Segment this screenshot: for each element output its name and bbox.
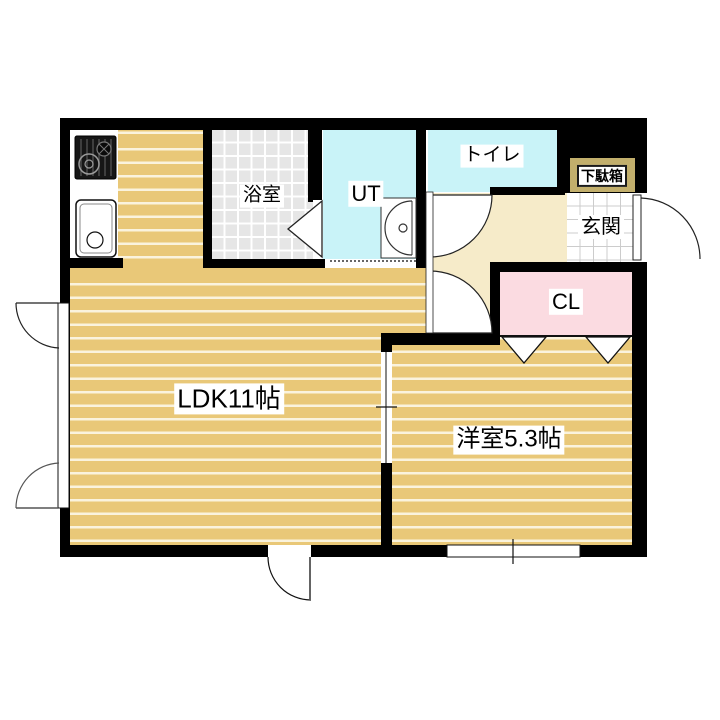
ldk-bottom-door-swing-icon — [268, 545, 311, 600]
bathroom-folding-door-icon — [288, 200, 323, 259]
fixtures-overlay — [0, 0, 720, 720]
closet-label: CL — [549, 289, 583, 315]
ldk-left-window-icon — [16, 303, 69, 508]
utility-label: UT — [348, 181, 383, 207]
ldk-label: LDK11帖 — [174, 383, 284, 414]
toilet-label: トイレ — [460, 145, 523, 168]
hall-door-leaf — [426, 192, 433, 333]
washbasin-icon — [381, 198, 416, 258]
toilet-door-swing-icon — [430, 195, 492, 257]
bathroom-label: 浴室 — [240, 185, 284, 208]
floor-plan: 浴室 UT トイレ 玄関 下駄箱 CL LDK11帖 洋室5.3帖 — [0, 0, 720, 720]
stove-icon — [75, 136, 116, 179]
sliding-door-icon — [376, 352, 397, 463]
western-room-label: 洋室5.3帖 — [453, 426, 564, 455]
sink-icon — [76, 200, 116, 257]
utility-threshold — [325, 259, 416, 268]
ldk-hall-door-swing-icon — [430, 271, 492, 333]
shoe-cabinet-label: 下駄箱 — [577, 165, 627, 187]
entrance-label: 玄関 — [578, 215, 624, 239]
closet-bifold-doors-icon — [500, 336, 632, 363]
entrance-door-swing-icon — [633, 195, 700, 260]
western-room-window-icon — [447, 539, 580, 564]
